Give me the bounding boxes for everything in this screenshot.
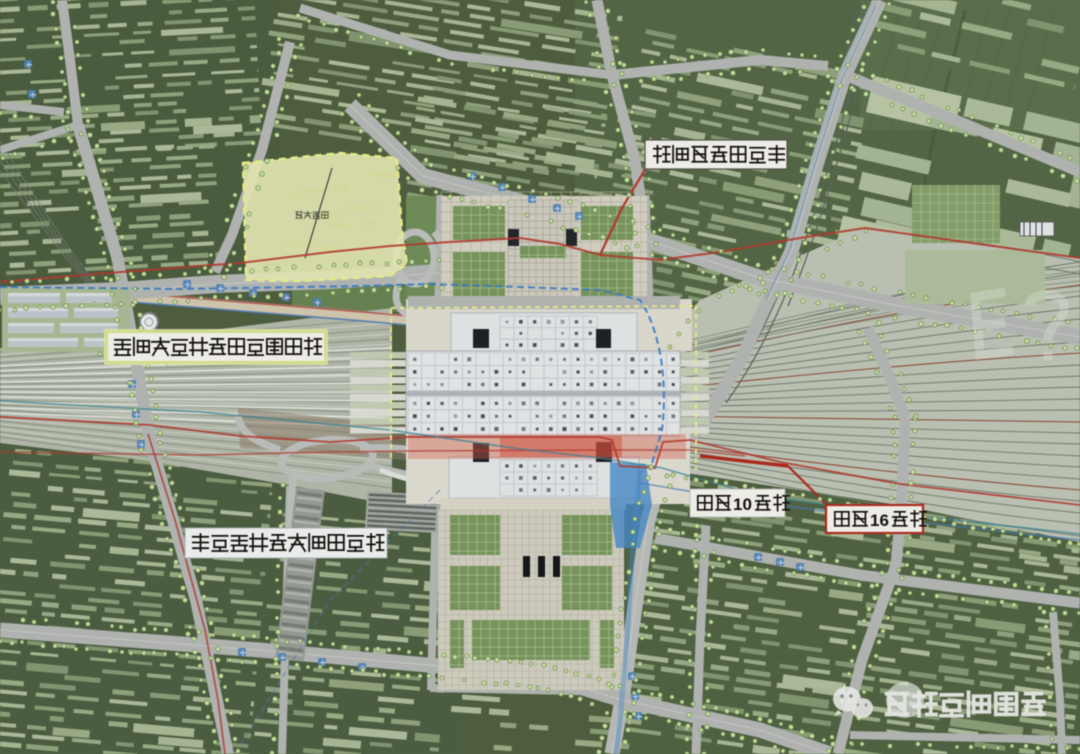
svg-text:16: 16	[870, 511, 889, 530]
svg-text:10: 10	[733, 495, 752, 514]
